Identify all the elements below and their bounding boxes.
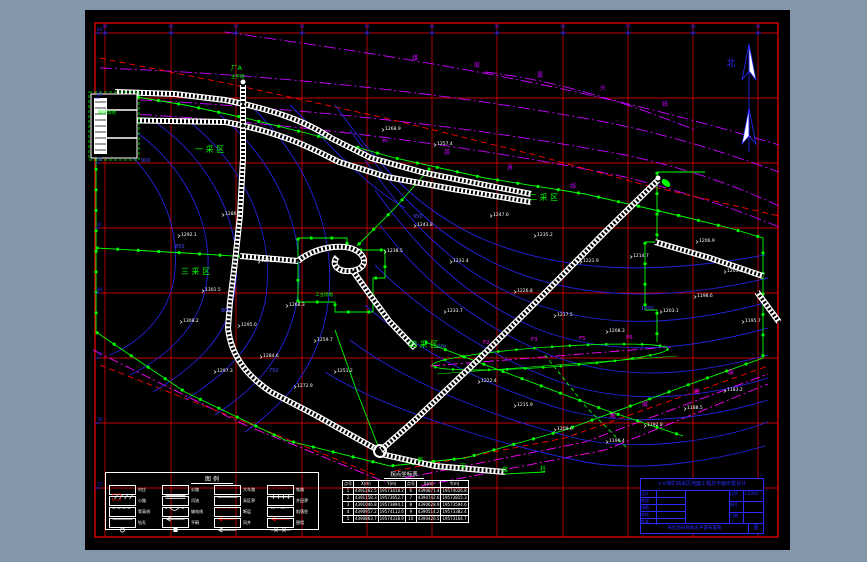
legend-item-label: 围墙 xyxy=(296,520,304,525)
legend-item: 平硐 xyxy=(162,517,213,528)
legend-item: 采区界 xyxy=(214,495,265,506)
contour-elevation-labels: 9008508007509501000 xyxy=(141,158,654,374)
svg-text:1257.4: 1257.4 xyxy=(437,141,453,147)
svg-text:1251.2: 1251.2 xyxy=(337,368,353,374)
legend-item: 等高线 xyxy=(109,506,160,517)
svg-text:1243.8: 1243.8 xyxy=(417,222,433,228)
svg-text:F3: F3 xyxy=(531,337,538,343)
coordinate-table-grid: 点号X(m)Y(m)点号X(m)Y(m)14391262.519573418.2… xyxy=(342,480,469,523)
svg-text:1000: 1000 xyxy=(641,306,654,312)
svg-text:92: 92 xyxy=(299,24,305,29)
table-cell: 4 xyxy=(343,509,354,516)
titleblock-signature-row: 设计 xyxy=(641,491,685,498)
legend-symbol-redarrow xyxy=(267,507,294,517)
table-cell: 9 xyxy=(405,509,416,516)
svg-text:96: 96 xyxy=(560,24,566,29)
svg-text:98: 98 xyxy=(690,24,696,29)
svg-text:1292.1: 1292.1 xyxy=(181,232,197,238)
svg-text:95: 95 xyxy=(494,24,500,29)
legend-item-label: 大车路 xyxy=(243,487,255,492)
titleblock-signature-row: 审核 xyxy=(641,512,685,519)
svg-text:层: 层 xyxy=(728,369,734,376)
svg-text:柱: 柱 xyxy=(540,465,546,473)
svg-text:1233.7: 1233.7 xyxy=(447,308,463,314)
svg-text:1203.1: 1203.1 xyxy=(663,308,679,314)
legend-symbol-hatch xyxy=(109,485,136,495)
table-header-cell: 点号 xyxy=(405,481,416,488)
title-block-header: ××煤矿四采区地面工程总平面布置设计 xyxy=(641,479,763,491)
svg-text:保: 保 xyxy=(417,456,423,464)
svg-text:1196.4: 1196.4 xyxy=(609,438,625,444)
table-row: 14391262.519573418.264390871.419574026.8 xyxy=(343,488,469,495)
svg-text:煤: 煤 xyxy=(502,466,508,474)
svg-text:1247.6: 1247.6 xyxy=(493,212,509,218)
legend-symbol-circle xyxy=(109,518,136,528)
svg-text:99: 99 xyxy=(755,24,761,29)
table-cell: 19573164.7 xyxy=(441,516,468,523)
legend-item-label: 陷落柱 xyxy=(296,509,308,514)
red-grid xyxy=(95,23,778,537)
table-header-cell: X(m) xyxy=(416,481,441,488)
drawing-canvas[interactable]: 北89909192939495969798998483828180797877一… xyxy=(85,10,790,550)
svg-text:97: 97 xyxy=(625,24,631,29)
svg-text:77: 77 xyxy=(97,482,103,487)
table-cell: 1 xyxy=(343,488,354,495)
table-cell: 6 xyxy=(405,488,416,495)
legend-symbol-warrow xyxy=(162,507,189,517)
svg-text:1284.6: 1284.6 xyxy=(263,353,279,359)
table-cell: 4390742.6 xyxy=(416,495,441,502)
table-cell: 19573418.2 xyxy=(378,488,405,495)
svg-text:层: 层 xyxy=(474,62,480,69)
svg-text:1308.2: 1308.2 xyxy=(183,318,199,324)
svg-text:1268.3: 1268.3 xyxy=(289,302,305,308)
legend-item: 公路 xyxy=(162,484,213,495)
svg-text:1209.6: 1209.6 xyxy=(557,426,573,432)
legend-title: 图 例 xyxy=(106,474,318,483)
legend-item: 陷落柱 xyxy=(267,506,318,517)
coordinate-table-title: 拐点坐标表 xyxy=(340,470,468,480)
svg-text:断: 断 xyxy=(694,388,700,396)
legend-item: 井田界 xyxy=(267,495,318,506)
svg-text:83: 83 xyxy=(97,92,103,97)
svg-text:F6: F6 xyxy=(626,335,633,341)
svg-text:工业场地: 工业场地 xyxy=(315,291,333,298)
titleblock-signature-row: 描图 xyxy=(641,505,685,512)
legend-item-label: 河流 xyxy=(191,498,199,503)
coordinate-table: 拐点坐标表 点号X(m)Y(m)点号X(m)Y(m)14391262.51957… xyxy=(340,470,468,528)
title-block-center-cell xyxy=(686,491,729,523)
legend-symbol-line xyxy=(109,507,136,517)
table-cell: 8 xyxy=(405,502,416,509)
svg-text:1226.8: 1226.8 xyxy=(517,288,533,294)
svg-text:1231.4: 1231.4 xyxy=(453,258,469,264)
svg-text:1183.2: 1183.2 xyxy=(727,387,743,393)
titleblock-info-row: 比例1:2000 xyxy=(730,491,763,502)
legend-item: 钻孔 xyxy=(109,517,160,528)
legend-item-label: 等高线 xyxy=(138,509,150,514)
svg-text:F2: F2 xyxy=(483,340,490,346)
titleblock-info-row: 图号 xyxy=(730,502,763,513)
legend-symbol-sq xyxy=(162,518,189,528)
svg-text:750: 750 xyxy=(269,368,279,374)
svg-text:900: 900 xyxy=(141,158,151,164)
svg-text:1214.7: 1214.7 xyxy=(633,253,649,259)
svg-text:1195.7: 1195.7 xyxy=(745,318,761,324)
legend-item: 大车路 xyxy=(214,484,265,495)
legend-item: 村庄 xyxy=(109,484,160,495)
svg-text:1215.9: 1215.9 xyxy=(517,402,533,408)
table-row: 44390957.219574112.694390514.219573382.4 xyxy=(343,509,469,516)
svg-text:煤: 煤 xyxy=(412,54,418,62)
legend-item: 断层 xyxy=(214,506,265,517)
table-row: 24391158.319573652.774390742.619573815.3 xyxy=(343,495,469,502)
app-window: 北89909192939495969798998483828180797877一… xyxy=(0,0,867,562)
legend-item-label: 小路 xyxy=(138,498,146,503)
legend-symbol-dash xyxy=(109,496,136,506)
svg-text:1238.5: 1238.5 xyxy=(387,248,403,254)
table-row: 34391046.819573894.184390628.919573594.6 xyxy=(343,502,469,509)
svg-text:79: 79 xyxy=(97,352,103,357)
legend-symbol-dline xyxy=(162,485,189,495)
table-header-cell: Y(m) xyxy=(378,481,405,488)
svg-text:1217.5: 1217.5 xyxy=(557,312,573,318)
legend-grid: 村庄公路大车路铁路小路河流采区界井田界等高线输电线断层陷落柱钻孔平硐风井围墙 xyxy=(109,484,317,528)
svg-text:界: 界 xyxy=(507,165,513,172)
svg-text:DF9: DF9 xyxy=(437,344,446,350)
svg-text:1286.4: 1286.4 xyxy=(225,211,241,217)
table-cell: 19573594.6 xyxy=(441,502,468,509)
svg-text:950: 950 xyxy=(413,214,423,220)
legend-item-label: 村庄 xyxy=(138,487,146,492)
table-cell: 5 xyxy=(343,516,354,523)
table-cell: 19574112.6 xyxy=(378,509,405,516)
legend-item-label: 输电线 xyxy=(191,509,203,514)
table-cell: 19574318.9 xyxy=(378,516,405,523)
legend-item-label: 铁路 xyxy=(296,487,304,492)
svg-text:1295.0: 1295.0 xyxy=(241,322,257,328)
svg-text:1275.8: 1275.8 xyxy=(261,258,277,264)
svg-text:1272.9: 1272.9 xyxy=(297,383,313,389)
title-block: ××煤矿四采区地面工程总平面布置设计 设计制图描图审核批准 比例1:2000图号… xyxy=(640,478,764,534)
legend-item-label: 采区界 xyxy=(243,498,255,503)
table-cell: 19573815.3 xyxy=(441,495,468,502)
table-cell: 3 xyxy=(343,502,354,509)
svg-text:78: 78 xyxy=(97,417,103,422)
svg-text:排矸场地: 排矸场地 xyxy=(98,109,116,116)
table-header-cell: X(m) xyxy=(354,481,379,488)
svg-text:1297.3: 1297.3 xyxy=(217,368,233,374)
svg-text:线: 线 xyxy=(662,100,668,108)
table-cell: 4390871.4 xyxy=(416,488,441,495)
titleblock-signature-row: 制图 xyxy=(641,498,685,505)
svg-text:89: 89 xyxy=(102,24,108,29)
mining-area-label: 一 采 区 xyxy=(195,144,224,154)
svg-text:94: 94 xyxy=(429,24,435,29)
table-cell: 7 xyxy=(405,495,416,502)
legend-item-label: 井田界 xyxy=(296,498,308,503)
table-cell: 2 xyxy=(343,495,354,502)
svg-text:层: 层 xyxy=(444,149,450,156)
svg-text:主平硐: 主平硐 xyxy=(231,73,245,80)
svg-text:82: 82 xyxy=(97,157,103,162)
svg-text:F5: F5 xyxy=(579,336,586,342)
svg-text:1268.9: 1268.9 xyxy=(385,126,401,132)
table-cell: 19573894.1 xyxy=(378,502,405,509)
svg-text:90: 90 xyxy=(168,24,174,29)
svg-text:线: 线 xyxy=(570,182,576,190)
site-plan-drawing: 北89909192939495969798998483828180797877一… xyxy=(85,10,790,550)
legend-item-label: 风井 xyxy=(243,520,251,525)
legend-box: 图 例 村庄公路大车路铁路小路河流采区界井田界等高线输电线断层陷落柱钻孔平硐风井… xyxy=(105,472,319,530)
table-cell: 4390514.2 xyxy=(416,509,441,516)
legend-item: 铁路 xyxy=(267,484,318,495)
mining-area-label: 三 采 区 xyxy=(181,266,210,276)
legend-item-label: 钻孔 xyxy=(138,520,146,525)
table-cell: 4391262.5 xyxy=(354,488,379,495)
svg-text:1201.3: 1201.3 xyxy=(727,268,743,274)
svg-text:1198.6: 1198.6 xyxy=(697,293,713,299)
svg-text:81: 81 xyxy=(97,222,103,227)
svg-text:1221.9: 1221.9 xyxy=(583,258,599,264)
legend-item: 围墙 xyxy=(267,517,318,528)
legend-symbol-redarrow xyxy=(214,507,241,517)
legend-item: 河流 xyxy=(162,495,213,506)
svg-text:80: 80 xyxy=(97,287,103,292)
legend-symbol-ticks xyxy=(267,485,294,495)
table-cell: 4391158.3 xyxy=(354,495,379,502)
svg-text:头: 头 xyxy=(600,84,606,92)
table-cell: 4390426.5 xyxy=(416,516,441,523)
table-cell: 4390628.9 xyxy=(416,502,441,509)
svg-text:1188.5: 1188.5 xyxy=(687,405,703,411)
svg-text:断: 断 xyxy=(610,412,616,420)
svg-text:层: 层 xyxy=(642,401,648,408)
legend-item-label: 断层 xyxy=(243,509,251,514)
roads xyxy=(110,80,779,473)
drawing-name: 采区地形地质总平面布置图 xyxy=(641,524,748,534)
title-block-info-rows: 比例1:2000图号日期 xyxy=(729,491,763,523)
sheet-label: 图 xyxy=(748,524,763,534)
legend-symbol-xline xyxy=(267,518,294,528)
svg-text:厂A: 厂A xyxy=(231,64,243,72)
table-cell: 4390863.7 xyxy=(354,516,379,523)
legend-item: 输电线 xyxy=(162,506,213,517)
table-cell: 19573382.4 xyxy=(441,509,468,516)
svg-text:岩: 岩 xyxy=(382,136,388,144)
legend-item-label: 平硐 xyxy=(191,520,199,525)
svg-text:1208.3: 1208.3 xyxy=(609,328,625,334)
svg-text:91: 91 xyxy=(233,24,239,29)
table-header-cell: Y(m) xyxy=(441,481,468,488)
svg-text:露: 露 xyxy=(537,72,543,79)
yard-building xyxy=(89,92,139,160)
table-row: 54390863.719574318.9104390426.519573164.… xyxy=(343,516,469,523)
table-cell: 10 xyxy=(405,516,416,523)
svg-text:850: 850 xyxy=(175,244,185,250)
north-label: 北 xyxy=(726,58,735,69)
table-header-cell: 点号 xyxy=(343,481,354,488)
svg-text:1192.8: 1192.8 xyxy=(647,422,663,428)
svg-text:800: 800 xyxy=(221,308,231,314)
table-cell: 4390957.2 xyxy=(354,509,379,516)
svg-text:93: 93 xyxy=(364,24,370,29)
mining-area-label: 四 采 区 xyxy=(409,339,438,349)
titleblock-info-row: 日期 xyxy=(730,513,763,523)
legend-symbol-dashdot xyxy=(267,496,294,506)
legend-symbol-reddash xyxy=(214,496,241,506)
legend-symbol-warrow xyxy=(214,518,241,528)
contour-lines xyxy=(105,105,768,466)
svg-text:安: 安 xyxy=(460,462,466,470)
svg-text:1259.7: 1259.7 xyxy=(317,337,333,343)
svg-text:1301.5: 1301.5 xyxy=(205,287,221,293)
legend-symbol-wavy xyxy=(162,496,189,506)
table-cell: 4391046.8 xyxy=(354,502,379,509)
table-cell: 19573652.7 xyxy=(378,495,405,502)
svg-text:84: 84 xyxy=(97,27,103,32)
svg-text:1222.4: 1222.4 xyxy=(481,378,497,384)
legend-item: 小路 xyxy=(109,495,160,506)
legend-item: 风井 xyxy=(214,517,265,528)
table-cell: 19574026.8 xyxy=(441,488,468,495)
svg-text:1206.9: 1206.9 xyxy=(699,238,715,244)
svg-text:1235.2: 1235.2 xyxy=(537,232,553,238)
legend-item-label: 公路 xyxy=(191,487,199,492)
mining-area-label: 二 采 区 xyxy=(529,192,558,202)
title-block-signature-rows: 设计制图描图审核批准 xyxy=(641,491,686,523)
legend-symbol-line xyxy=(214,485,241,495)
